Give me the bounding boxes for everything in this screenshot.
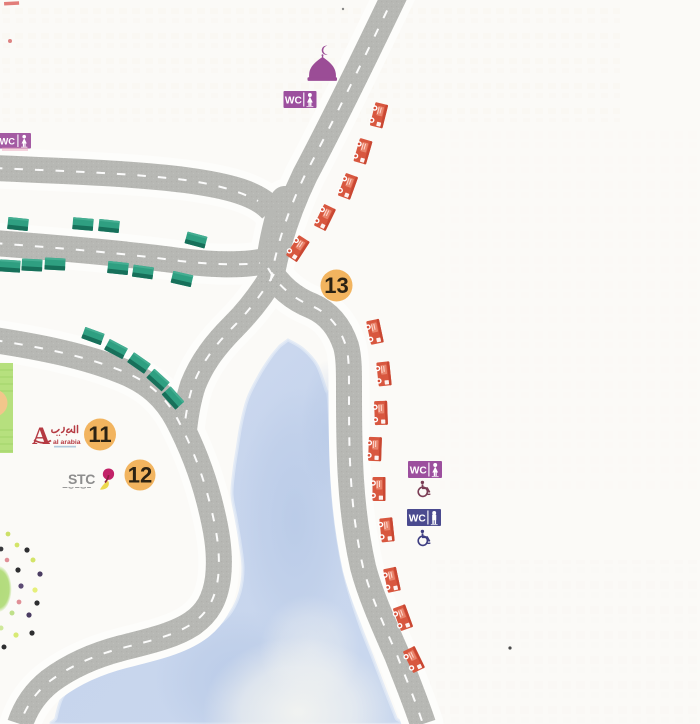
- svg-text:WC: WC: [285, 95, 303, 106]
- svg-text:STC: STC: [68, 471, 95, 487]
- svg-text:WC: WC: [410, 465, 428, 476]
- svg-text:WC: WC: [409, 513, 427, 524]
- svg-text:al arabia: al arabia: [53, 439, 81, 446]
- svg-text:12: 12: [128, 463, 152, 488]
- svg-text:13: 13: [324, 273, 348, 298]
- svg-text:A: A: [32, 423, 50, 450]
- svg-text:WC: WC: [0, 136, 15, 146]
- svg-text:11: 11: [88, 422, 111, 447]
